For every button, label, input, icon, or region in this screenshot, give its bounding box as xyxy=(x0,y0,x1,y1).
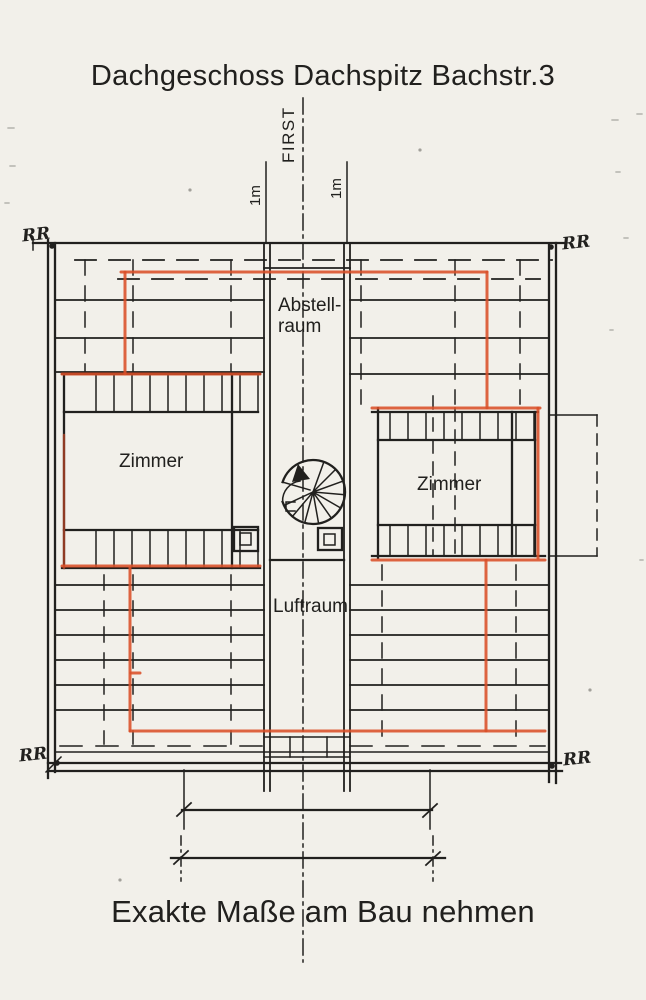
ridge-label: FIRST xyxy=(279,106,299,163)
storage-room-label-line2: raum xyxy=(278,316,321,337)
right-room-label: Zimmer xyxy=(417,474,481,496)
dimension-lines xyxy=(171,770,445,881)
storage-room-label-line1: Abstell- xyxy=(278,295,341,316)
air-space-lines xyxy=(264,560,350,757)
storage-room-label: Abstell- raum xyxy=(278,295,368,337)
chimney-icon-center xyxy=(318,528,342,550)
corner-label-bottom-left: RR xyxy=(18,744,48,767)
page-title: Dachgeschoss Dachspitz Bachstr.3 xyxy=(0,60,646,93)
spiral-stair-icon xyxy=(283,460,345,524)
left-room-label: Zimmer xyxy=(119,451,183,473)
corner-label-bottom-right: RR xyxy=(562,748,592,771)
footer-note: Exakte Maße am Bau nehmen xyxy=(0,894,646,930)
floor-plan-page: Dachgeschoss Dachspitz Bachstr.3 FIRST 1… xyxy=(0,0,646,1000)
floor-plan-drawing xyxy=(0,0,646,1000)
corner-label-top-left: RR xyxy=(21,224,51,247)
dimension-label-right: 1m xyxy=(328,178,345,199)
corner-label-top-right: RR xyxy=(561,232,591,255)
air-space-label: Luftraum xyxy=(273,596,348,618)
dimension-label-left: 1m xyxy=(247,185,264,206)
